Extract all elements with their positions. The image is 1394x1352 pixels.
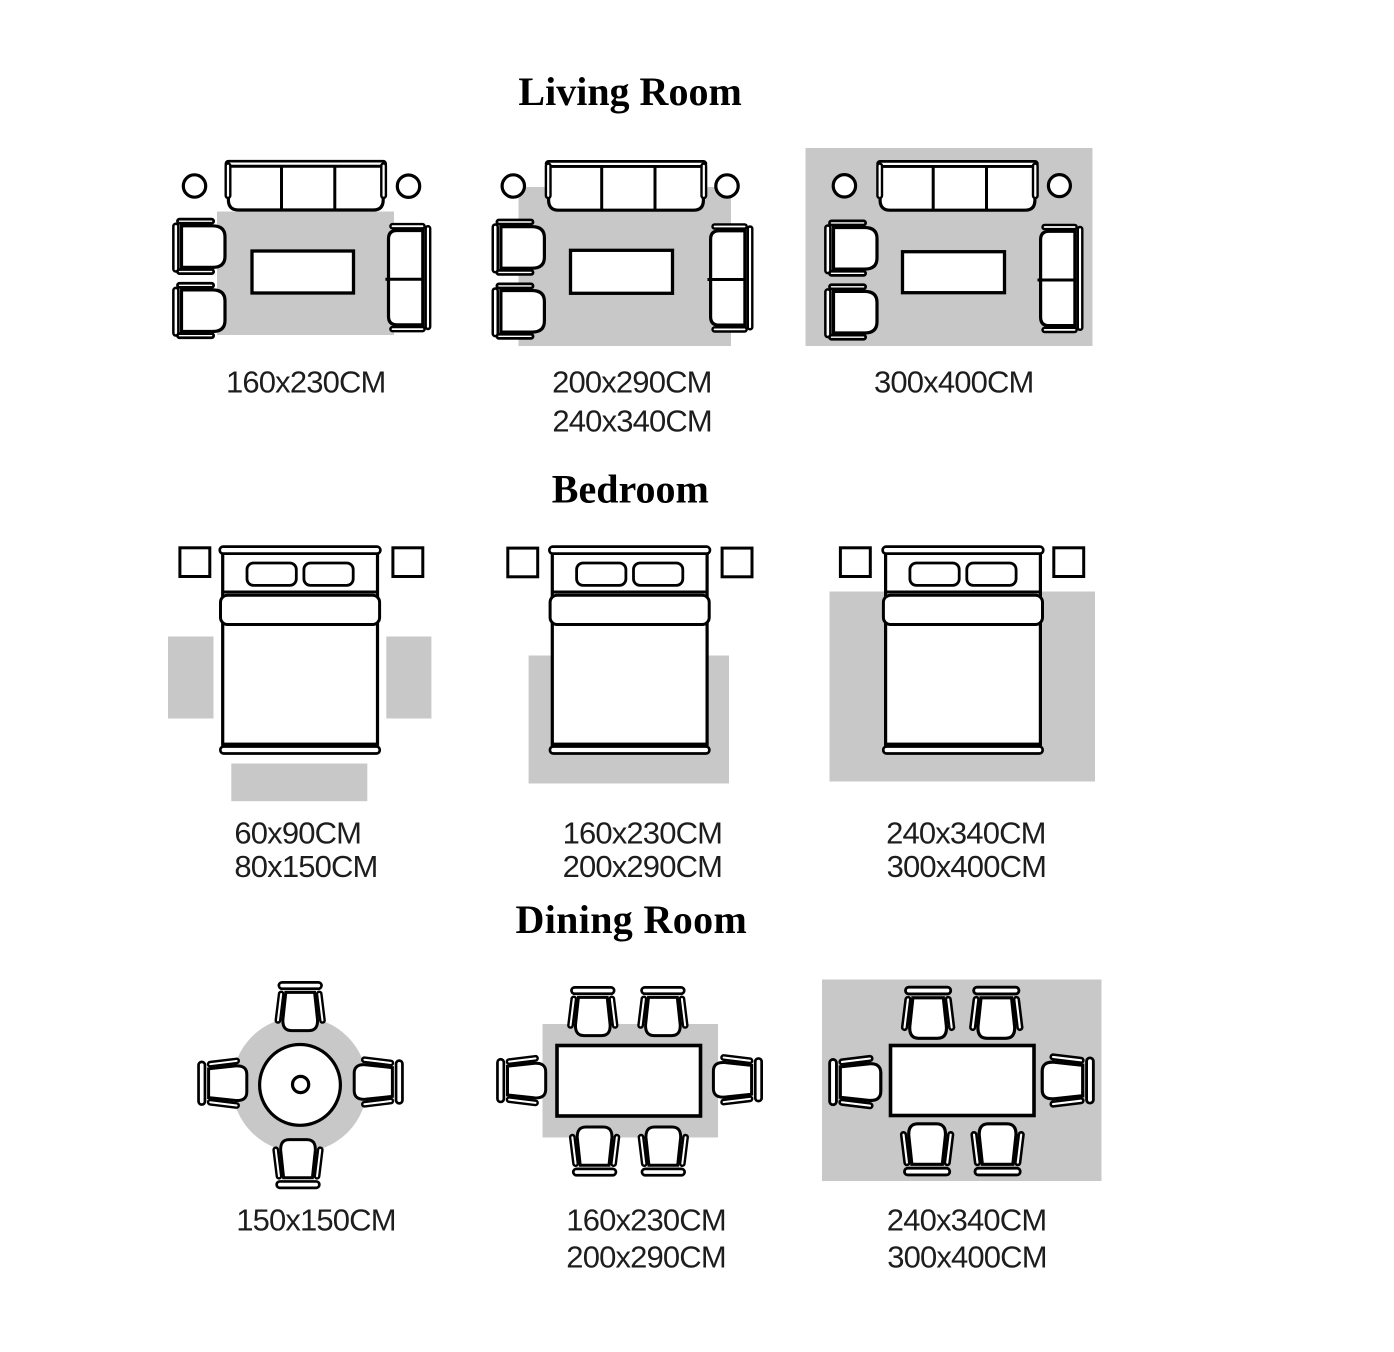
svg-text:Dining Room: Dining Room bbox=[515, 897, 747, 942]
svg-text:160x230CM: 160x230CM bbox=[566, 1203, 726, 1238]
svg-text:200x290CM: 200x290CM bbox=[563, 849, 723, 884]
svg-text:240x340CM: 240x340CM bbox=[886, 815, 1046, 850]
svg-text:Living Room: Living Room bbox=[518, 69, 741, 114]
svg-text:150x150CM: 150x150CM bbox=[236, 1203, 396, 1238]
svg-text:80x150CM: 80x150CM bbox=[234, 849, 377, 884]
svg-text:160x230CM: 160x230CM bbox=[563, 815, 723, 850]
svg-text:200x290CM: 200x290CM bbox=[566, 1240, 726, 1275]
svg-text:300x400CM: 300x400CM bbox=[874, 364, 1034, 399]
svg-text:300x400CM: 300x400CM bbox=[887, 849, 1047, 884]
svg-text:240x340CM: 240x340CM bbox=[552, 404, 712, 439]
svg-text:Bedroom: Bedroom bbox=[552, 467, 709, 512]
svg-text:300x400CM: 300x400CM bbox=[887, 1240, 1047, 1275]
svg-text:160x230CM: 160x230CM bbox=[226, 364, 386, 399]
svg-text:200x290CM: 200x290CM bbox=[552, 364, 712, 399]
svg-text:240x340CM: 240x340CM bbox=[887, 1203, 1047, 1238]
svg-text:60x90CM: 60x90CM bbox=[234, 815, 361, 850]
